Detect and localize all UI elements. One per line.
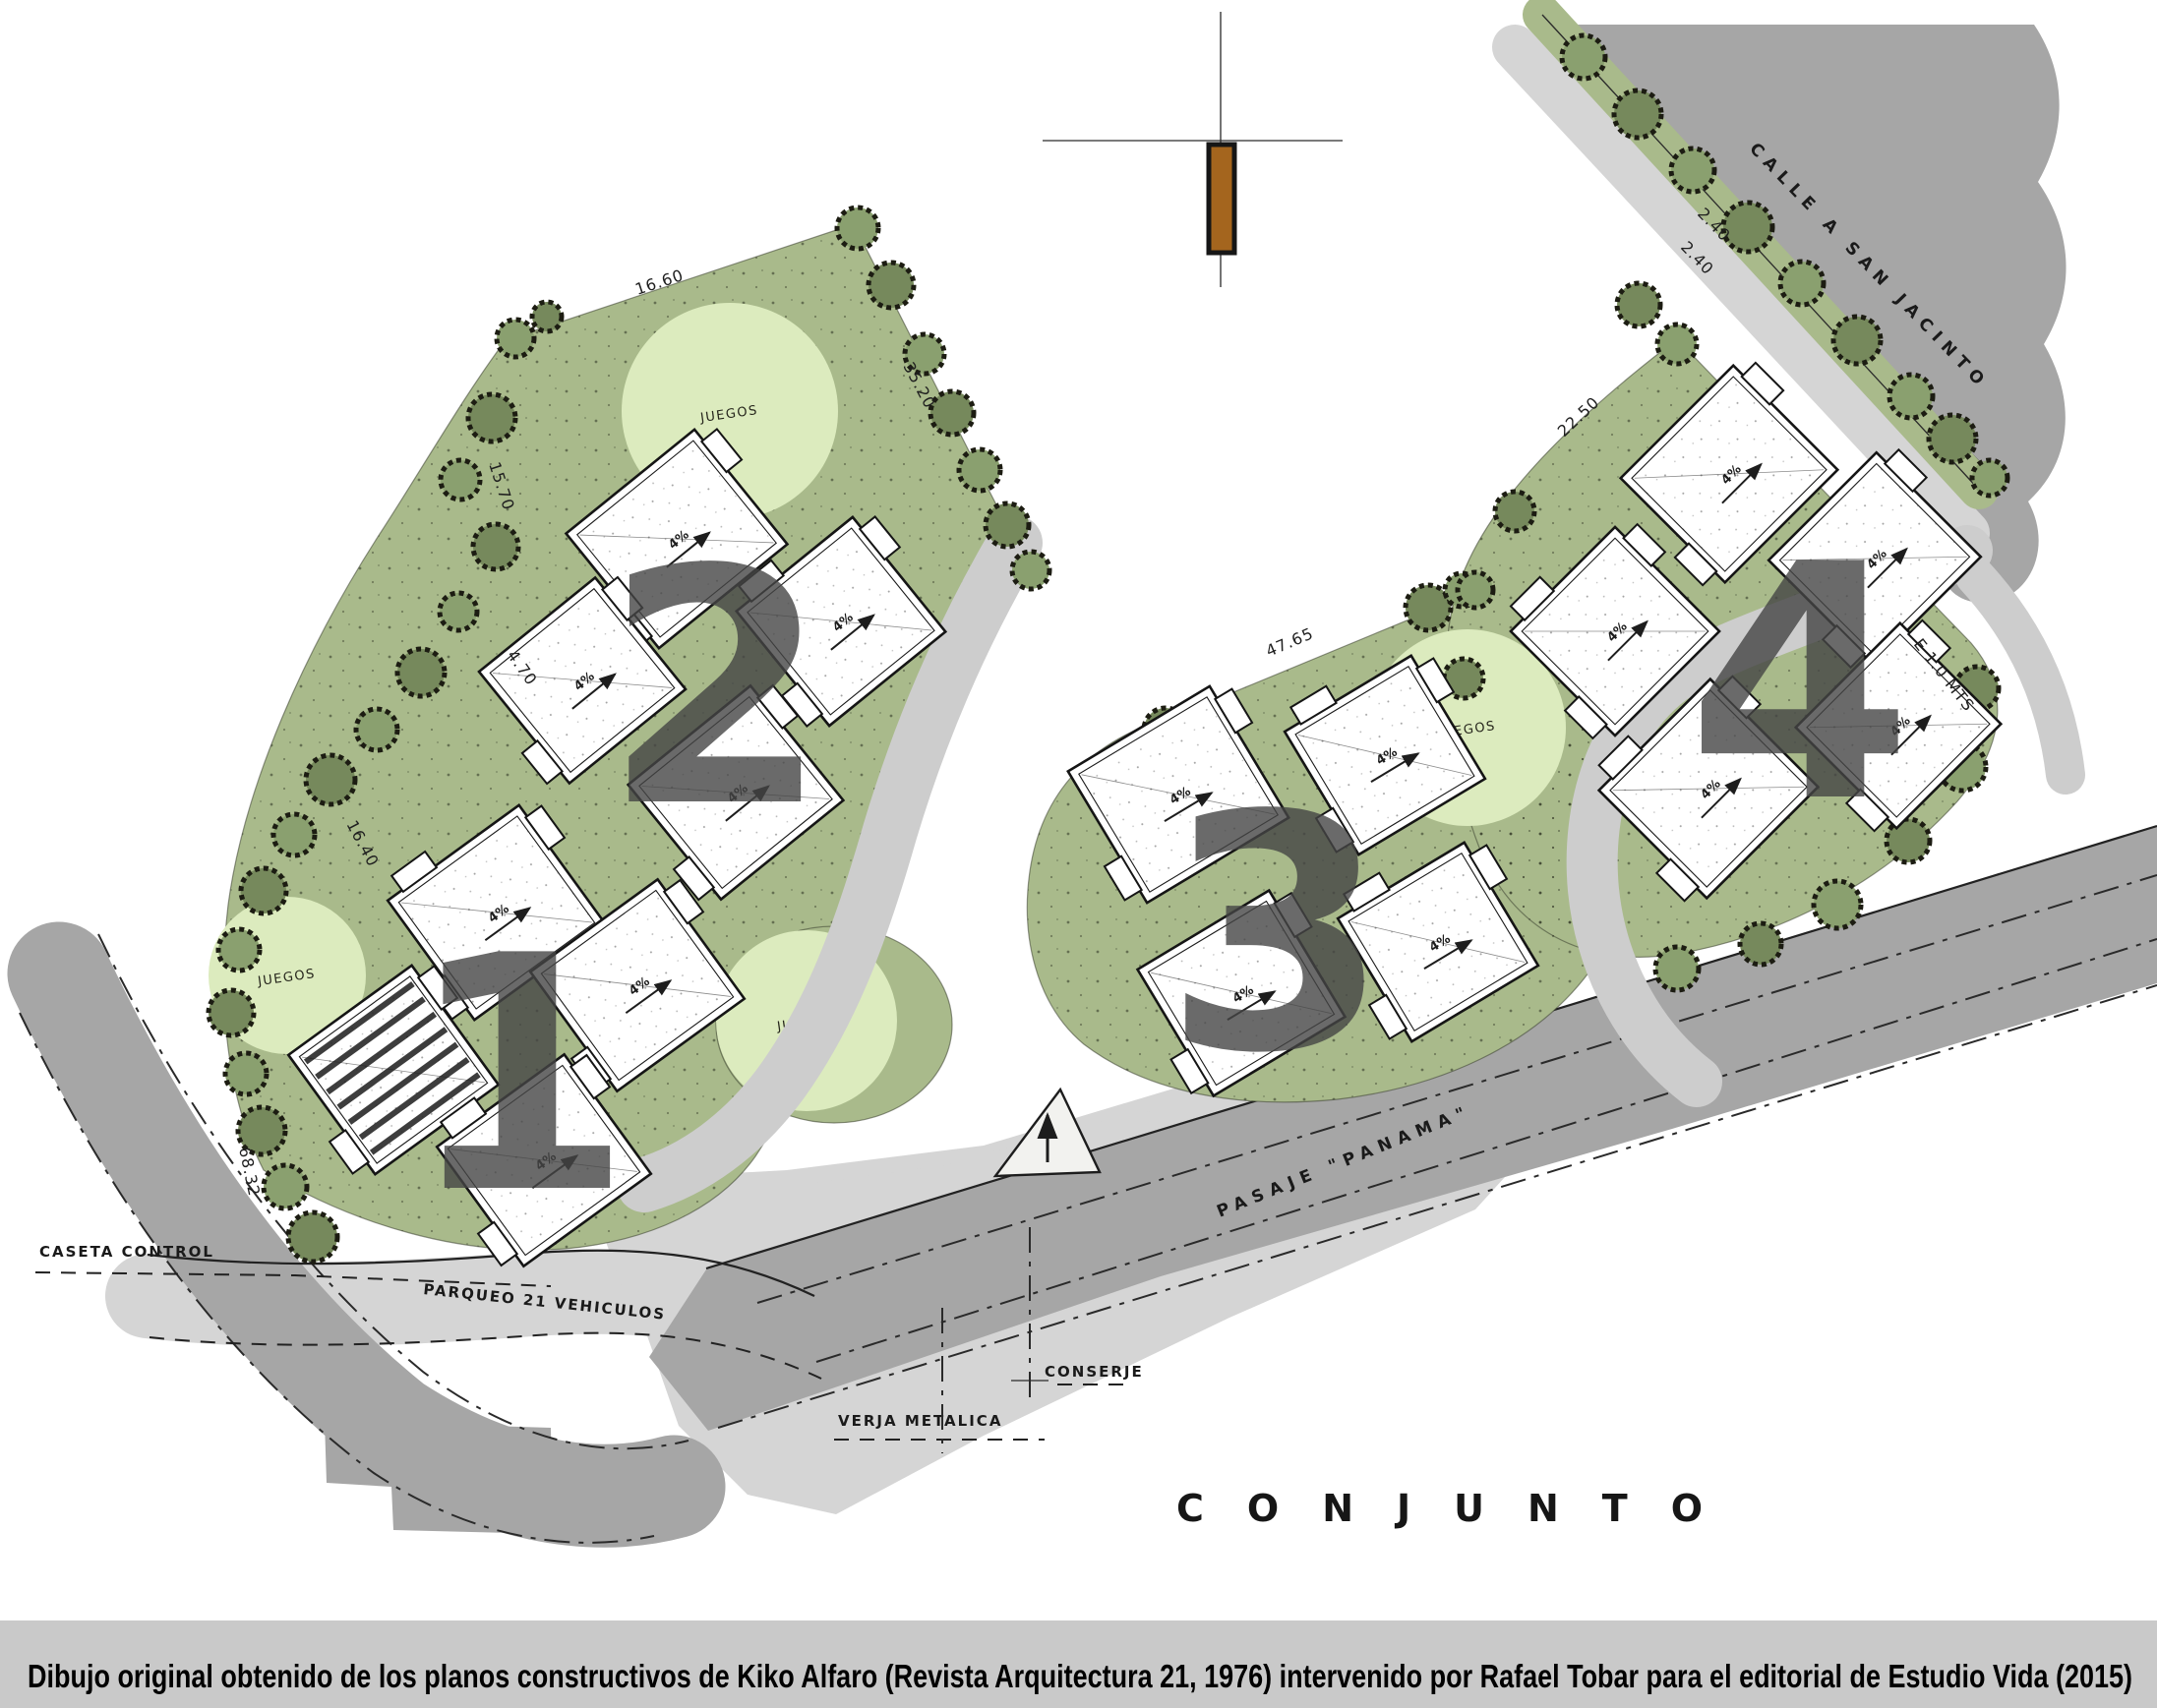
benchmark-marker [1043, 12, 1343, 287]
site-plan-page: CALLE A SAN JACINTO JUEGOS JUEGOS JUEGOS… [0, 0, 2157, 1708]
tree-icon [986, 503, 1029, 547]
tree-icon [1655, 947, 1699, 990]
cluster-number-2: 2 [603, 501, 829, 878]
tree-icon [1889, 375, 1933, 418]
benchmark-post [1209, 145, 1234, 253]
tree-icon [497, 320, 534, 357]
site-plan-drawing: CALLE A SAN JACINTO JUEGOS JUEGOS JUEGOS… [0, 0, 2157, 1708]
tree-icon [1458, 572, 1493, 608]
tree-icon [1780, 262, 1824, 305]
tree-icon [837, 207, 878, 249]
tree-icon [209, 990, 254, 1035]
fence-label: VERJA METALICA [838, 1412, 1002, 1430]
plan-title: CONJUNTO [1176, 1487, 1746, 1530]
caption-text: Dibujo original obtenido de los planos c… [28, 1658, 2132, 1694]
tree-icon [1495, 492, 1534, 531]
tree-icon [1657, 324, 1697, 364]
tree-icon [1617, 283, 1660, 326]
tree-icon [1614, 90, 1661, 138]
tree-icon [306, 755, 355, 804]
guardhouse-label: CASETA CONTROL [39, 1243, 214, 1261]
tree-icon [1740, 923, 1781, 965]
tree-icon [440, 593, 477, 630]
tree-icon [441, 460, 480, 500]
tree-icon [241, 868, 286, 913]
caretaker-label: CONSERJE [1045, 1363, 1144, 1381]
tree-icon [225, 1053, 267, 1094]
tree-icon [959, 449, 1000, 491]
tree-icon [473, 524, 518, 569]
cluster-number-3: 3 [1164, 746, 1390, 1124]
cluster-number-4: 4 [1687, 496, 1913, 873]
tree-icon [397, 649, 445, 696]
tree-icon [1929, 415, 1976, 462]
dimension-label: 47.65 [1263, 623, 1316, 660]
tree-icon [468, 394, 515, 442]
tree-icon [1562, 35, 1605, 79]
tree-icon [1406, 585, 1451, 630]
outer-road-blob [325, 1421, 553, 1534]
tree-icon [1671, 148, 1714, 192]
caption-bar: Dibujo original obtenido de los planos c… [0, 1620, 2157, 1708]
tree-icon [1814, 881, 1861, 928]
tree-icon [218, 929, 260, 971]
tree-icon [532, 302, 562, 331]
tree-icon [356, 709, 397, 750]
tree-icon [288, 1212, 337, 1262]
tree-icon [273, 814, 315, 855]
tree-icon [1012, 552, 1049, 589]
tree-icon [1972, 460, 2007, 496]
tree-icon [1833, 317, 1881, 364]
cluster-number-1: 1 [406, 887, 632, 1265]
tree-icon [264, 1165, 307, 1208]
tree-icon [869, 263, 914, 308]
